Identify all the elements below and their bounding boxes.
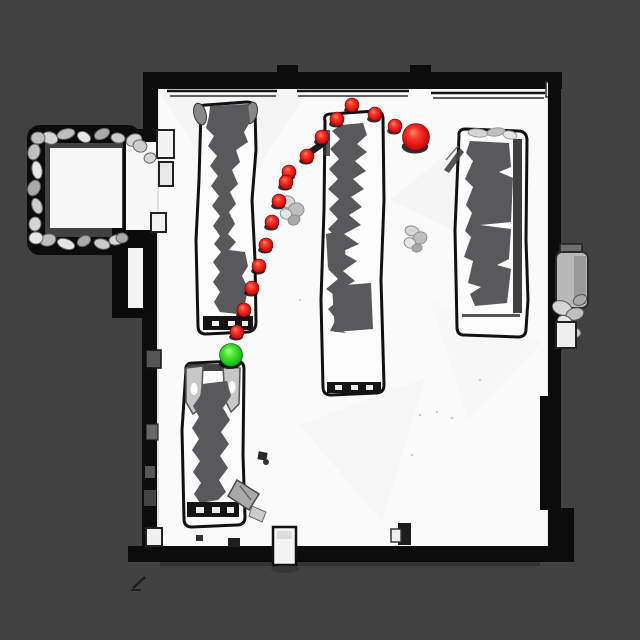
- waypoint-marker-body: [388, 119, 402, 133]
- waypoint-marker-body: [265, 215, 279, 229]
- shelf-bottom-base-slot: [196, 507, 204, 513]
- robot-marker-body: [220, 344, 243, 367]
- scene-svg[interactable]: [0, 0, 640, 640]
- top-wall: [146, 72, 562, 89]
- shelf-mid-bulge: [326, 230, 346, 268]
- wall-box: [146, 528, 162, 546]
- waypoint-marker-body: [259, 238, 273, 252]
- shelf-left-base-slot: [212, 321, 219, 326]
- column-lower-box: [556, 322, 576, 348]
- waypoint-marker-body: [368, 107, 382, 121]
- floor-speck: [451, 417, 453, 419]
- wall-fixture: [146, 350, 161, 368]
- goal-marker[interactable]: [402, 124, 430, 154]
- waypoint-marker-body: [315, 130, 329, 144]
- wall-box: [159, 162, 173, 186]
- top-wall-pillar: [410, 65, 431, 77]
- shelf-mid-base-slot: [351, 385, 358, 390]
- waypoint-marker-body: [230, 325, 244, 339]
- shelf-left-base-slot: [242, 321, 248, 326]
- waypoint-marker-body: [330, 112, 344, 126]
- rock: [31, 132, 45, 144]
- goal-marker-body: [403, 124, 430, 151]
- wall-fixture: [145, 466, 155, 478]
- waypoint-marker-body: [252, 259, 266, 273]
- bottom-wall: [128, 546, 560, 562]
- doorway-column-shadow: [271, 565, 299, 573]
- waypoint-marker-body: [245, 281, 259, 295]
- waypoint-marker-body: [279, 175, 293, 189]
- left-wall-upper: [143, 72, 158, 140]
- nook-floor: [128, 248, 143, 308]
- floor-clutter: [196, 535, 203, 541]
- map-viewport[interactable]: [0, 0, 640, 640]
- shelf-right-inner-line: [462, 314, 520, 317]
- prong-hole: [191, 383, 198, 395]
- shelf-bottom-base-slot: [227, 507, 234, 513]
- floor-speck: [411, 454, 413, 456]
- wall-box: [157, 130, 174, 158]
- floor-clutter: [228, 538, 240, 547]
- floor-speck: [419, 414, 421, 416]
- waypoint-marker-body: [345, 98, 359, 112]
- rock: [116, 233, 128, 243]
- wall-box: [151, 213, 166, 232]
- floor-speck: [299, 299, 301, 301]
- shelf-mid-bulge: [332, 283, 373, 332]
- top-wall-pillar: [277, 65, 298, 77]
- waypoint-marker-body: [237, 303, 251, 317]
- wall-fixture: [146, 424, 158, 440]
- floor-speck: [436, 411, 438, 413]
- shelf-left-base-slot: [228, 321, 235, 326]
- annex-floor: [50, 148, 122, 228]
- shelf-mid-base-slot: [335, 385, 342, 390]
- bottom-wall-box: [391, 529, 401, 542]
- floor-clutter: [263, 459, 269, 465]
- waypoint-marker-body: [300, 149, 314, 163]
- robot-marker[interactable]: [219, 344, 243, 370]
- waypoint-marker-body: [272, 194, 286, 208]
- shelf-bottom-base-slot: [212, 507, 220, 513]
- shelf-mid-base-slot: [366, 385, 373, 390]
- bottom-wall-shadow: [160, 562, 540, 566]
- wall-fixture: [144, 490, 156, 506]
- shelf-right-edge: [513, 139, 522, 313]
- floor-speck: [479, 379, 481, 381]
- right-wall-step: [540, 396, 550, 510]
- doorway-column-top: [277, 531, 292, 539]
- rock: [29, 232, 43, 244]
